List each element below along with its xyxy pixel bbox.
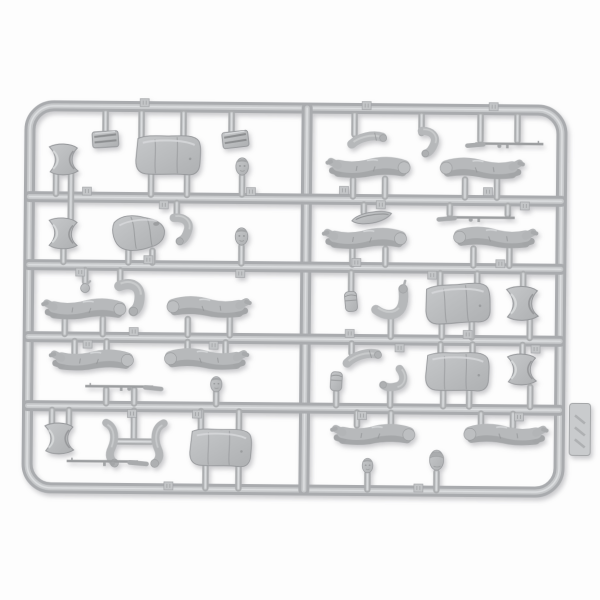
part-number-tag — [140, 99, 149, 107]
part-torso — [425, 283, 490, 325]
part-number-tag — [357, 412, 366, 420]
part-number-tag — [127, 409, 136, 417]
part-number-tag — [82, 187, 91, 195]
part-number-tag — [352, 258, 361, 266]
part-number-tag — [483, 188, 492, 196]
part-number-tag — [496, 260, 505, 268]
part-torso — [135, 134, 201, 177]
part-number-tag — [246, 188, 255, 196]
part-number-tag — [209, 341, 218, 349]
part-folded — [222, 130, 250, 149]
part-legs — [167, 298, 250, 316]
part-number-tag — [345, 329, 354, 337]
part-number-tag — [428, 271, 437, 279]
part-legs — [440, 159, 523, 177]
part-number-tag — [531, 345, 540, 353]
part-torso — [189, 427, 252, 469]
part-number-tag — [339, 186, 348, 194]
part-number-tag — [489, 103, 498, 111]
part-legs — [453, 228, 536, 246]
part-number-tag — [83, 340, 92, 348]
part-number-tag — [376, 201, 385, 209]
part-legs — [324, 230, 407, 247]
part-legs — [164, 350, 247, 368]
part-torso — [425, 351, 490, 393]
part-number-tag — [76, 268, 85, 276]
part-folded — [92, 131, 119, 149]
part-legs — [51, 351, 134, 368]
part-legs — [43, 300, 126, 317]
part-legs — [332, 426, 415, 443]
part-number-tag — [159, 201, 168, 209]
part-helmet-head — [430, 450, 444, 470]
part-legs — [464, 425, 547, 443]
part-legs — [327, 159, 410, 176]
part-number-tag — [463, 330, 472, 338]
sprue-photo — [0, 0, 600, 600]
part-number-tag — [514, 413, 523, 421]
part-pouch — [330, 371, 343, 391]
part-number-tag — [192, 410, 201, 418]
part-number-tag — [236, 269, 245, 277]
part-number-tag — [414, 484, 423, 492]
part-head — [236, 158, 249, 175]
part-number-tag — [520, 202, 529, 210]
part-number-tag — [164, 482, 173, 490]
part-number-tag — [395, 344, 404, 352]
part-number-tag — [144, 256, 153, 264]
sprue-brand-tab — [569, 403, 590, 455]
part-head — [235, 228, 248, 245]
part-head — [362, 458, 373, 473]
part-pouch — [344, 291, 358, 312]
part-head — [211, 376, 222, 392]
part-number-tag — [129, 328, 138, 336]
product-photo — [0, 0, 600, 600]
part-number-tag — [362, 102, 371, 110]
